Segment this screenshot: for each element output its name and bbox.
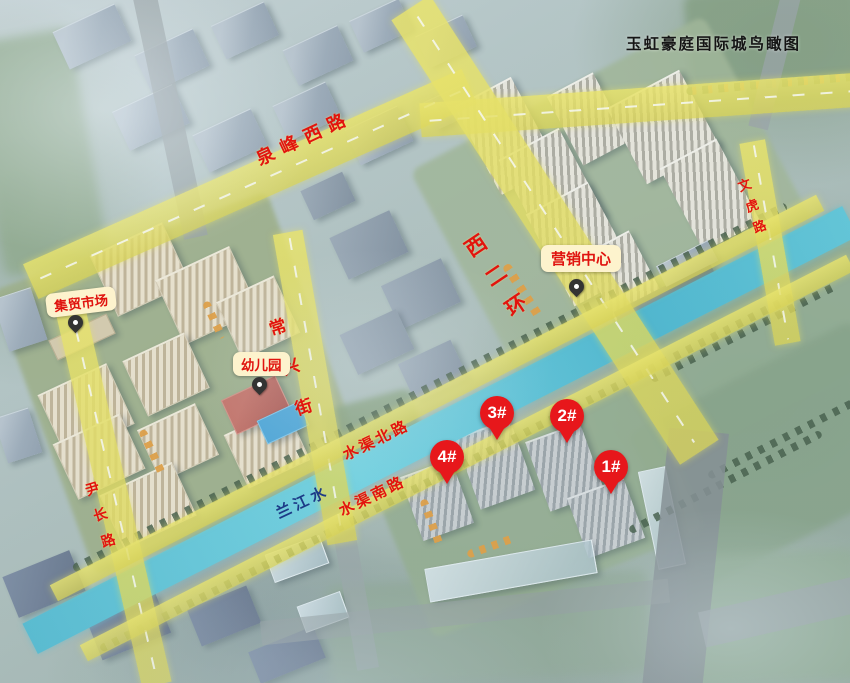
building-pin-3-label: 3# <box>480 396 514 430</box>
road-label-wenhu: 文虎路 <box>735 177 770 243</box>
poi-pin-sales-center-icon <box>566 276 587 297</box>
poi-pin-kindergarten-icon <box>249 374 270 395</box>
building-pin-3: 3# <box>479 396 515 440</box>
building-pin-2-label: 2# <box>550 399 584 433</box>
road-label-quanfeng-west: 泉峰西路 <box>251 103 356 171</box>
road-label-shuiqu-south: 水渠南路 <box>335 470 409 520</box>
pin-tail-icon <box>439 471 455 484</box>
road-label-shuiqu-north: 水渠北路 <box>339 414 413 464</box>
road-label-yinchang: 尹长路 <box>83 480 120 562</box>
road-label-changxing-street: 常兴街 <box>265 316 320 441</box>
road-label-west-second-ring: 西二环 <box>460 231 538 332</box>
poi-label-kindergarten: 幼儿园 <box>233 352 290 376</box>
aerial-view: 玉虹豪庭国际城鸟瞰图 泉峰西路 西二环 常兴街 尹长路 文虎路 水渠北路 水渠南… <box>0 0 850 683</box>
poi-label-sales-center: 营销中心 <box>541 245 621 272</box>
annotations-layer: 玉虹豪庭国际城鸟瞰图 泉峰西路 西二环 常兴街 尹长路 文虎路 水渠北路 水渠南… <box>0 0 850 683</box>
building-pin-1-label: 1# <box>594 450 628 484</box>
poi-label-market: 集贸市场 <box>45 286 117 318</box>
building-pin-4: 4# <box>429 440 465 484</box>
pin-tail-icon <box>559 430 575 443</box>
pin-tail-icon <box>603 481 619 494</box>
building-pin-1: 1# <box>593 450 629 494</box>
building-pin-2: 2# <box>549 399 585 443</box>
pin-tail-icon <box>489 427 505 440</box>
building-pin-4-label: 4# <box>430 440 464 474</box>
river-label-lanjiang: 兰江水 <box>272 480 333 523</box>
page-title: 玉虹豪庭国际城鸟瞰图 <box>626 32 801 54</box>
